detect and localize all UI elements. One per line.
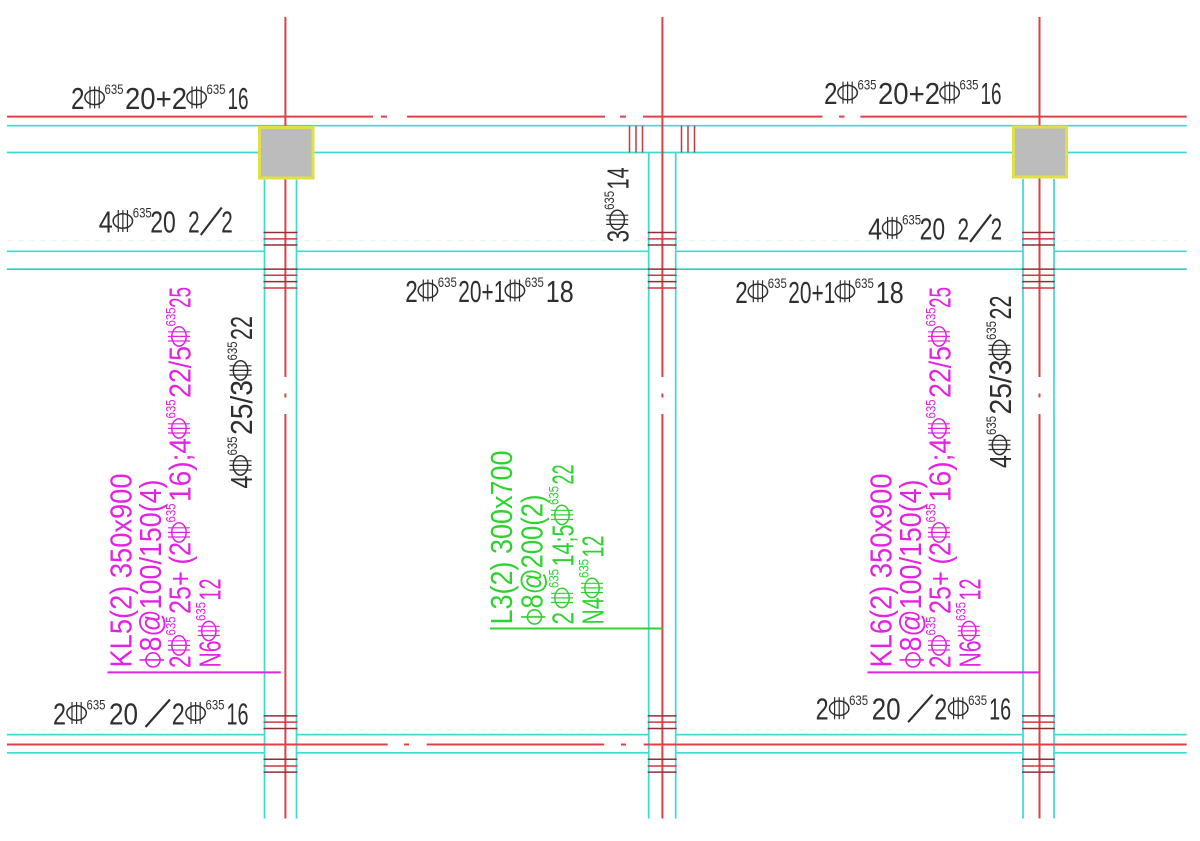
svg-text:25: 25 bbox=[163, 287, 198, 308]
svg-text:20+2: 20+2 bbox=[125, 81, 187, 116]
svg-text:2: 2 bbox=[71, 81, 85, 116]
svg-text:20: 20 bbox=[150, 205, 176, 240]
svg-text:8@200(2): 8@200(2) bbox=[515, 495, 550, 609]
svg-text:16);4: 16);4 bbox=[923, 438, 958, 502]
svg-text:16: 16 bbox=[989, 692, 1011, 727]
svg-text:2: 2 bbox=[958, 211, 970, 246]
svg-text:20: 20 bbox=[920, 211, 946, 246]
svg-text:12: 12 bbox=[192, 579, 227, 601]
svg-text:22: 22 bbox=[224, 316, 259, 340]
svg-text:20+1: 20+1 bbox=[458, 274, 505, 309]
svg-text:12: 12 bbox=[576, 536, 611, 558]
svg-text:20+2: 20+2 bbox=[878, 76, 940, 111]
svg-text:22: 22 bbox=[983, 296, 1018, 320]
svg-text:25: 25 bbox=[923, 287, 958, 308]
svg-text:22/5: 22/5 bbox=[163, 346, 198, 398]
svg-text:2: 2 bbox=[824, 76, 838, 111]
svg-text:2: 2 bbox=[735, 275, 748, 310]
svg-text:18: 18 bbox=[876, 275, 904, 310]
svg-text:2: 2 bbox=[53, 697, 66, 732]
svg-text:3: 3 bbox=[601, 230, 636, 243]
svg-text:N4: N4 bbox=[576, 598, 611, 625]
svg-text:2: 2 bbox=[816, 692, 829, 727]
svg-text:18: 18 bbox=[546, 274, 574, 309]
svg-text:2: 2 bbox=[405, 274, 418, 309]
svg-text:20: 20 bbox=[109, 697, 138, 732]
svg-text:4: 4 bbox=[868, 211, 882, 246]
svg-text:2: 2 bbox=[172, 697, 185, 732]
svg-text:22: 22 bbox=[546, 465, 581, 485]
svg-text:16: 16 bbox=[227, 697, 249, 732]
svg-text:16: 16 bbox=[228, 81, 249, 116]
svg-text:12: 12 bbox=[952, 579, 987, 601]
svg-text:N6: N6 bbox=[952, 641, 987, 668]
svg-text:2: 2 bbox=[991, 211, 1003, 246]
svg-text:20: 20 bbox=[872, 692, 901, 727]
svg-text:16: 16 bbox=[981, 76, 1002, 111]
svg-text:14: 14 bbox=[601, 167, 636, 189]
svg-text:4: 4 bbox=[224, 476, 259, 489]
svg-text:25/3: 25/3 bbox=[224, 380, 259, 435]
svg-text:16);4: 16);4 bbox=[163, 438, 198, 502]
svg-text:4: 4 bbox=[983, 455, 1018, 468]
svg-text:2: 2 bbox=[221, 205, 233, 240]
svg-text:25/3: 25/3 bbox=[983, 360, 1018, 415]
svg-text:N6: N6 bbox=[192, 641, 227, 668]
svg-text:4: 4 bbox=[99, 205, 113, 240]
svg-text:2: 2 bbox=[934, 692, 947, 727]
svg-text:22/5: 22/5 bbox=[923, 346, 958, 398]
svg-text:2: 2 bbox=[188, 205, 200, 240]
svg-text:20+1: 20+1 bbox=[788, 275, 835, 310]
